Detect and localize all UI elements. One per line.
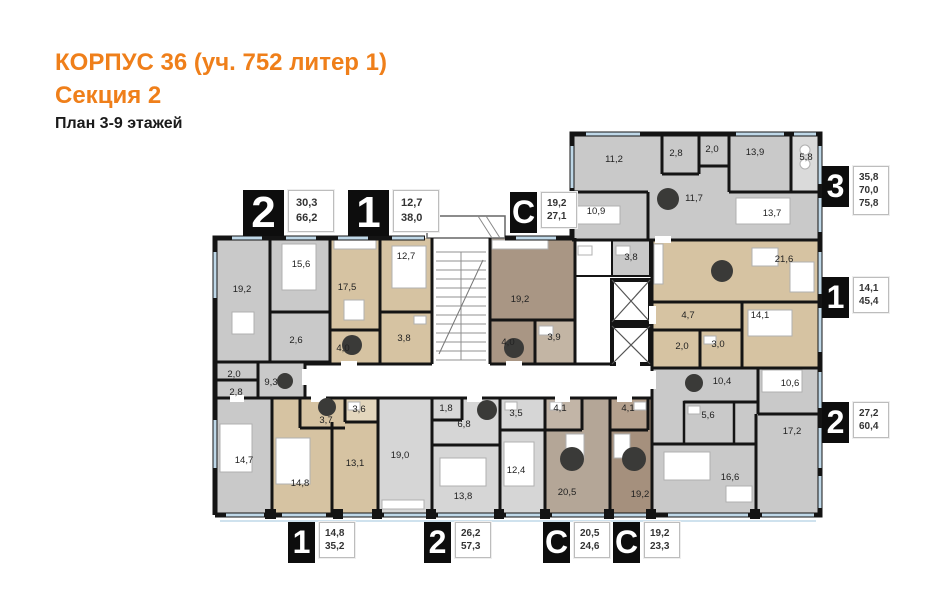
apartment-areas: 12,738,0 xyxy=(393,190,439,232)
apartment-areas: 14,835,2 xyxy=(319,522,355,558)
room-area-label: 2,0 xyxy=(227,369,240,380)
room-area-label: 2,0 xyxy=(675,341,688,352)
apartment-area-value: 14,8 xyxy=(325,527,349,540)
apartment-tag: 226,257,3 xyxy=(424,522,491,563)
room-area-label: 3,5 xyxy=(509,408,522,419)
apartment-area-value: 26,2 xyxy=(461,527,485,540)
apartment-tag: 114,145,4 xyxy=(822,277,889,318)
entry-marker xyxy=(318,398,336,416)
room-area-label: 2,0 xyxy=(705,144,718,155)
apartment-area-value: 70,0 xyxy=(859,184,883,197)
room-area-label: 21,6 xyxy=(775,254,794,265)
room-area-label: 3,8 xyxy=(624,252,637,263)
room-area-label: 13,7 xyxy=(763,208,782,219)
apartment-area-value: 38,0 xyxy=(401,211,431,226)
apartment-areas: 30,366,2 xyxy=(288,190,334,232)
apartment-rooms-number: С xyxy=(510,192,537,233)
apartment-area-value: 20,5 xyxy=(580,527,604,540)
room-area-label: 17,5 xyxy=(338,282,357,293)
apartment-tag: 112,738,0 xyxy=(348,190,439,236)
room-area-label: 19,2 xyxy=(233,284,252,295)
apartment-tag: 230,366,2 xyxy=(243,190,334,236)
apartment-rooms-number: 1 xyxy=(288,522,315,563)
room-area-label: 13,9 xyxy=(746,147,765,158)
room-area-label: 20,5 xyxy=(558,487,577,498)
apartment-area-value: 30,3 xyxy=(296,196,326,211)
room-area-label: 17,2 xyxy=(783,426,802,437)
room-area-label: 3,9 xyxy=(547,332,560,343)
room-area-label: 12,4 xyxy=(507,465,526,476)
room-area-label: 11,2 xyxy=(605,154,623,165)
apartment-tag: С19,223,3 xyxy=(613,522,680,563)
room-area-label: 2,6 xyxy=(289,335,302,346)
apartment-tag: 227,260,4 xyxy=(822,402,889,443)
apartment-area-value: 57,3 xyxy=(461,540,485,553)
room-area-label: 2,8 xyxy=(229,387,242,398)
room-area-label: 4,0 xyxy=(501,337,514,348)
room-area-label: 3,7 xyxy=(319,415,332,426)
room-area-label: 10,9 xyxy=(587,206,606,217)
apartment-area-value: 19,2 xyxy=(650,527,674,540)
apartment-area-value: 75,8 xyxy=(859,197,883,210)
apartment-areas: 19,223,3 xyxy=(644,522,680,558)
floors-subtitle: План 3-9 этажей xyxy=(55,112,387,136)
apartment-rooms-number: 2 xyxy=(424,522,451,563)
room-area-label: 12,7 xyxy=(397,251,416,262)
apartment-tag: С20,524,6 xyxy=(543,522,610,563)
stairs-icon xyxy=(436,252,486,360)
apartment-area-value: 27,2 xyxy=(859,407,883,420)
room-area-label: 4,7 xyxy=(681,310,694,321)
room-area-label: 14,7 xyxy=(235,455,254,466)
room-area-label: 4,0 xyxy=(336,343,349,354)
room-area-label: 11,7 xyxy=(685,193,703,204)
elevator-shafts xyxy=(612,280,650,364)
apartment-areas: 14,145,4 xyxy=(853,277,889,313)
entry-marker xyxy=(711,260,733,282)
apartment-area-value: 35,8 xyxy=(859,171,883,184)
apartment-rooms-number: С xyxy=(543,522,570,563)
entry-marker xyxy=(685,374,703,392)
apartment-area-value: 14,1 xyxy=(859,282,883,295)
room-area-label: 13,8 xyxy=(454,491,473,502)
entry-marker xyxy=(560,447,584,471)
apartment-area-value: 19,2 xyxy=(547,197,571,210)
section-title: Секция 2 xyxy=(55,79,387,112)
apartment-area-value: 45,4 xyxy=(859,295,883,308)
room-area-label: 10,4 xyxy=(713,376,732,387)
room-area-label: 3,6 xyxy=(352,404,365,415)
entry-marker xyxy=(277,373,293,389)
room-area-label: 19,0 xyxy=(391,450,410,461)
apartment-rooms-number: С xyxy=(613,522,640,563)
apartment-area-value: 23,3 xyxy=(650,540,674,553)
technical-room xyxy=(575,240,612,276)
room-area-label: 4,1 xyxy=(621,403,634,414)
apartment-area-value: 35,2 xyxy=(325,540,349,553)
room-area-label: 14,8 xyxy=(291,478,310,489)
apartment-area-value: 12,7 xyxy=(401,196,431,211)
apartment-area-value: 24,6 xyxy=(580,540,604,553)
apartment-areas: 26,257,3 xyxy=(455,522,491,558)
apartment-tag: 114,835,2 xyxy=(288,522,355,563)
entry-marker xyxy=(622,447,646,471)
entry-marker xyxy=(477,400,497,420)
room-area-label: 16,6 xyxy=(721,472,740,483)
apartment-area-value: 27,1 xyxy=(547,210,571,223)
room-area-label: 19,2 xyxy=(511,294,530,305)
apartment-area-value: 66,2 xyxy=(296,211,326,226)
entry-marker xyxy=(657,188,679,210)
apartment-area-value: 60,4 xyxy=(859,420,883,433)
apartment-rooms-number: 1 xyxy=(348,190,389,236)
floor-plan-page: 19,215,62,62,02,89,314,717,512,74,03,819… xyxy=(0,0,941,600)
room-area-label: 2,8 xyxy=(669,148,682,159)
apartment-rooms-number: 1 xyxy=(822,277,849,318)
room-area-label: 14,1 xyxy=(751,310,770,321)
apartment-tag: 335,870,075,8 xyxy=(822,166,889,215)
apartment-rooms-number: 3 xyxy=(822,166,849,207)
room-area-label: 3,0 xyxy=(711,339,724,350)
room-area-label: 10,6 xyxy=(781,378,800,389)
apartment-areas: 19,227,1 xyxy=(541,192,577,228)
room-area-label: 3,8 xyxy=(397,333,410,344)
room-area-label: 13,1 xyxy=(346,458,365,469)
room-area-label: 19,2 xyxy=(631,489,650,500)
title-block: КОРПУС 36 (уч. 752 литер 1) Секция 2 Пла… xyxy=(55,46,387,136)
apartment-tag: С19,227,1 xyxy=(510,192,577,233)
room-area-label: 6,8 xyxy=(457,419,470,430)
room-area-label: 5,8 xyxy=(799,152,812,163)
room-area-label: 4,1 xyxy=(553,403,566,414)
building-title: КОРПУС 36 (уч. 752 литер 1) xyxy=(55,46,387,79)
apartment-areas: 35,870,075,8 xyxy=(853,166,889,215)
room-area-label: 9,3 xyxy=(264,377,277,388)
apartment-rooms-number: 2 xyxy=(243,190,284,236)
apartment-rooms-number: 2 xyxy=(822,402,849,443)
apartment-areas: 20,524,6 xyxy=(574,522,610,558)
room-area-label: 15,6 xyxy=(292,259,311,270)
room-area-label: 1,8 xyxy=(439,403,452,414)
apartment-areas: 27,260,4 xyxy=(853,402,889,438)
room-area-label: 5,6 xyxy=(701,410,714,421)
